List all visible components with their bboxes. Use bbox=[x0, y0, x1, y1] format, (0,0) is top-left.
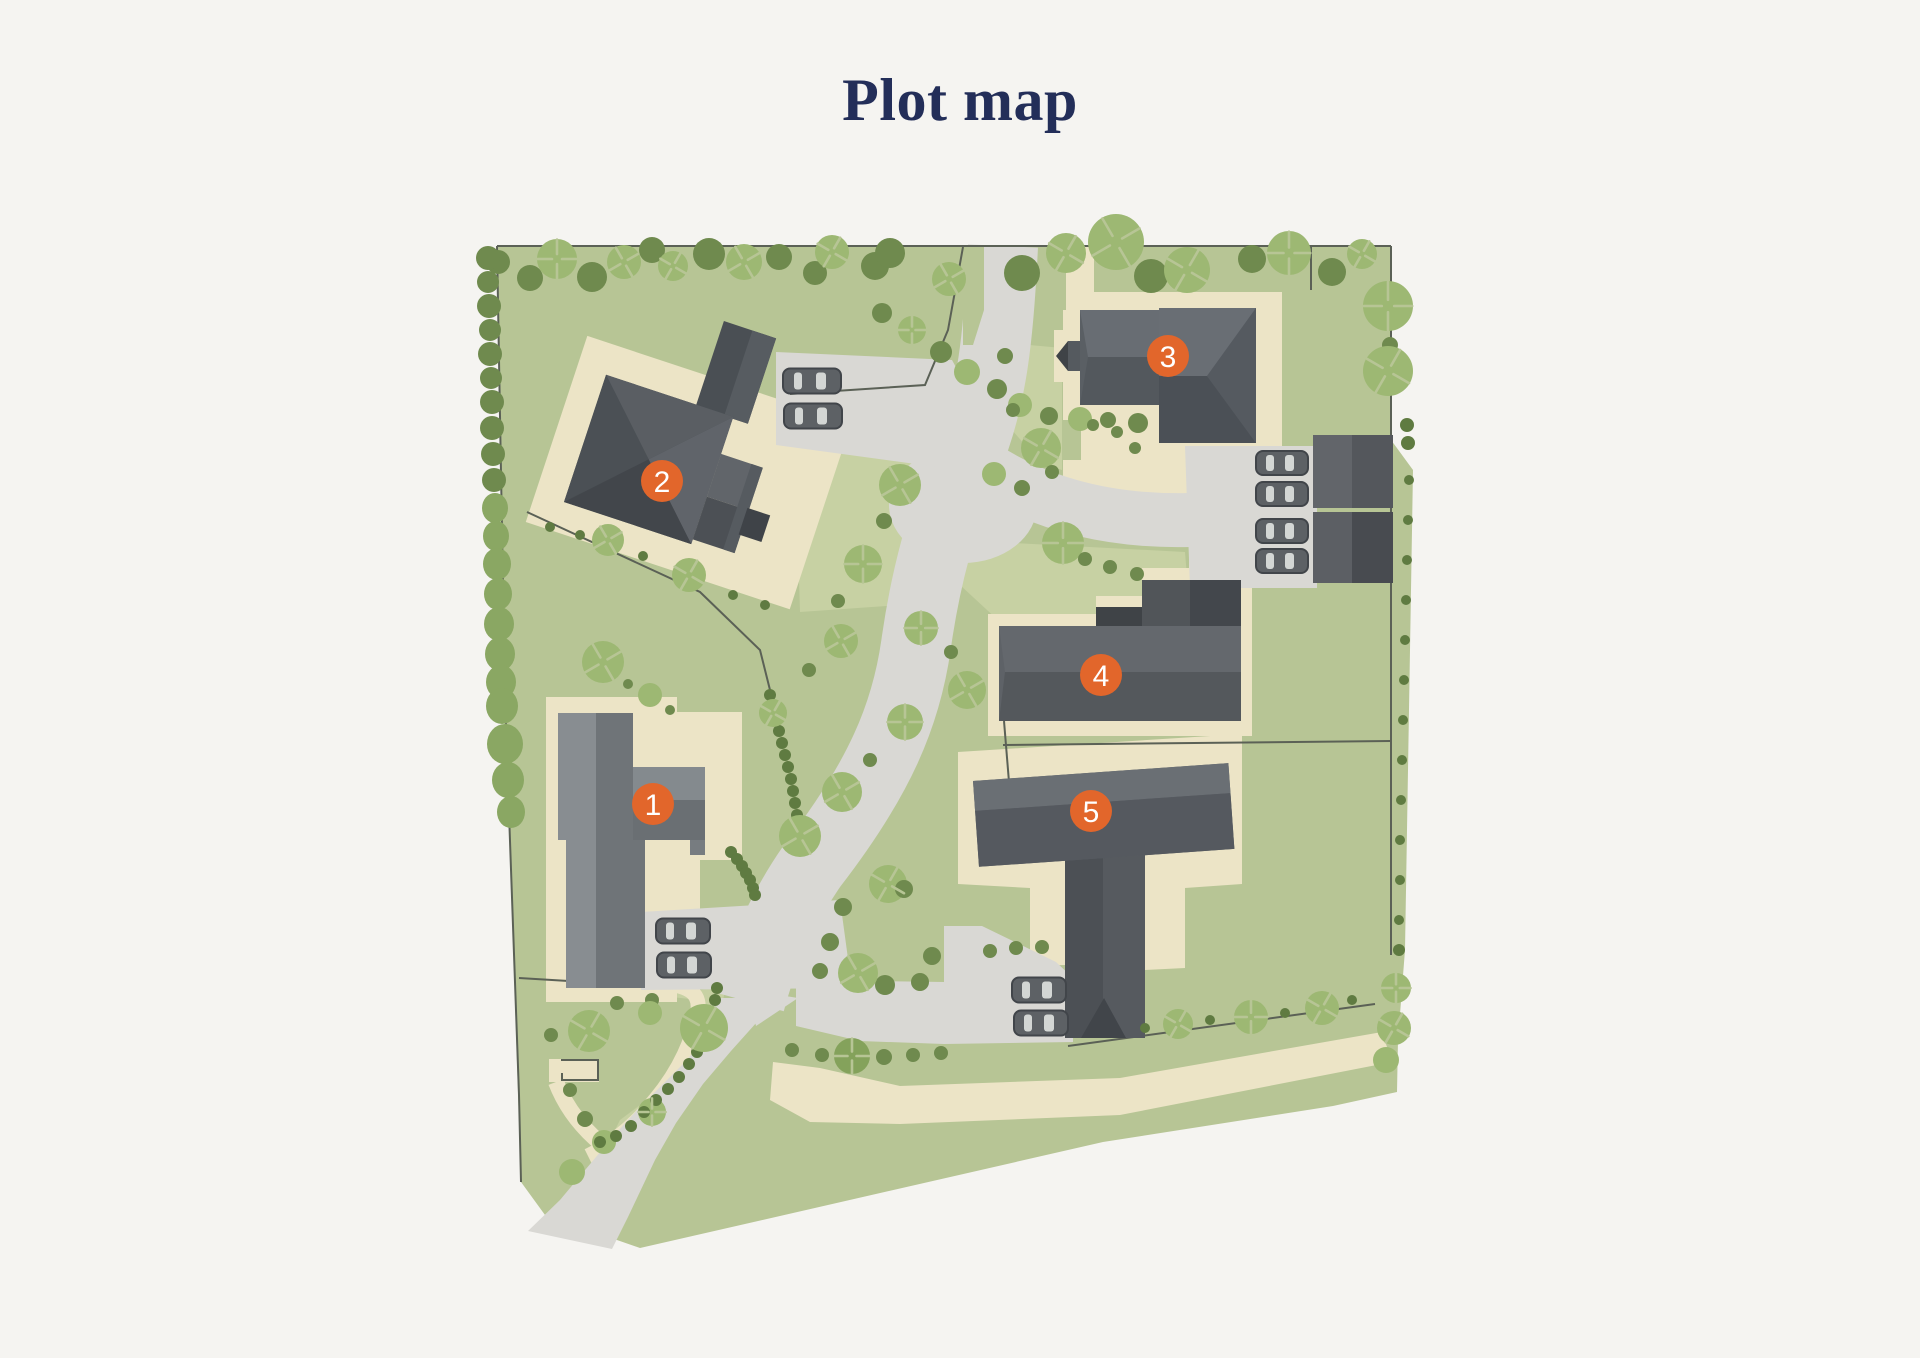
svg-text:2: 2 bbox=[654, 466, 671, 499]
svg-text:3: 3 bbox=[1160, 341, 1177, 374]
svg-text:1: 1 bbox=[645, 789, 662, 822]
svg-text:4: 4 bbox=[1093, 660, 1110, 693]
svg-text:5: 5 bbox=[1083, 796, 1100, 829]
